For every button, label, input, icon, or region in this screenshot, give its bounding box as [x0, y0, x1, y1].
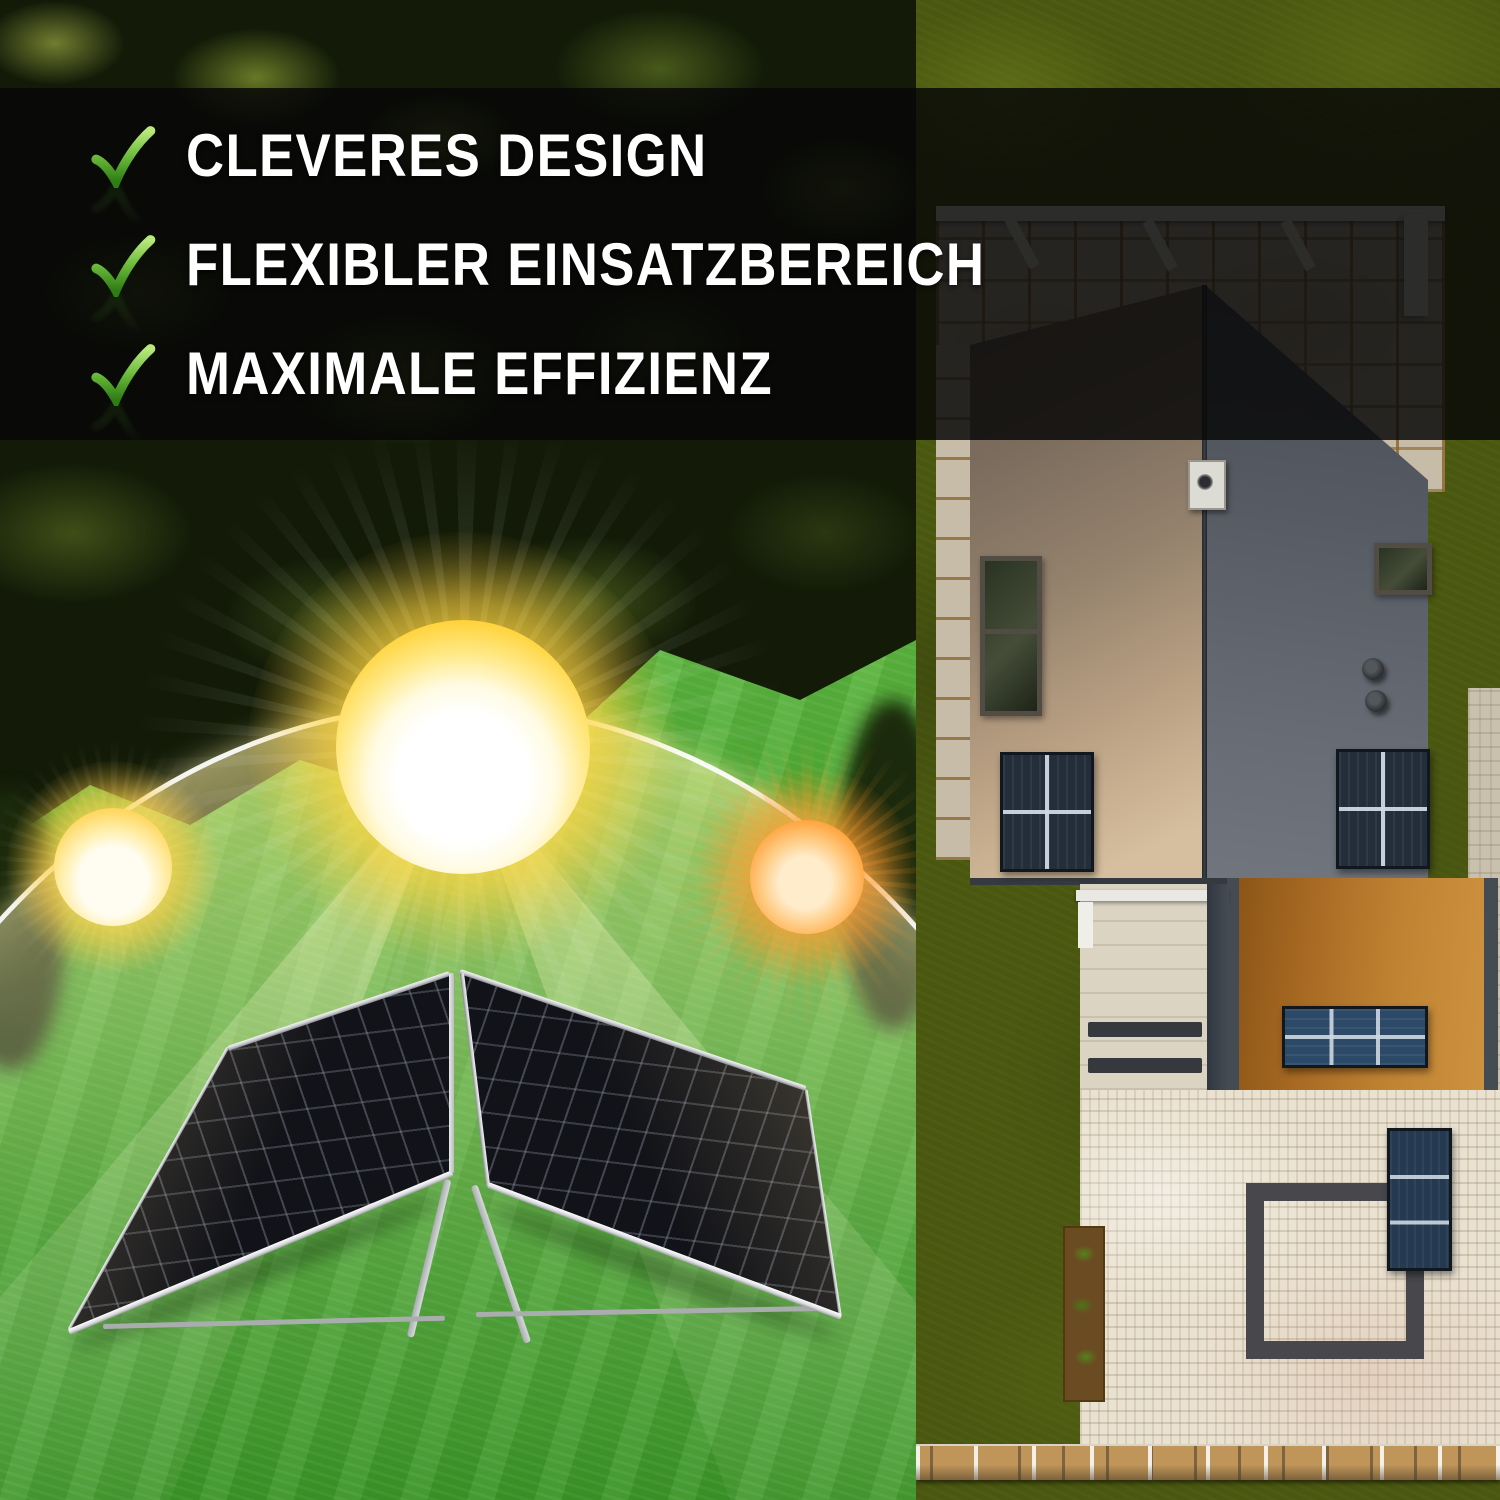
check-icon: [88, 233, 156, 297]
benefits-panel: CLEVERES DESIGN FLEXIBLER EINSATZBEREICH: [0, 88, 1500, 440]
stair-tread: [1088, 1022, 1202, 1037]
sun-morning-icon: [54, 808, 172, 926]
stair-tread: [1088, 1058, 1202, 1073]
feature-list: CLEVERES DESIGN FLEXIBLER EINSATZBEREICH: [0, 88, 1500, 406]
check-icon-glyph: [88, 342, 156, 406]
marketing-image: CLEVERES DESIGN FLEXIBLER EINSATZBEREICH: [0, 0, 1500, 1500]
panel-fold-edge: [449, 973, 454, 1173]
skylight: [980, 556, 1042, 716]
check-icon: [88, 342, 156, 406]
chimney-cap: [1197, 474, 1213, 490]
feature-item: CLEVERES DESIGN: [88, 124, 1500, 188]
rooftop-solar-array-right: [1336, 749, 1430, 869]
feature-item: FLEXIBLER EINSATZBEREICH: [88, 233, 1500, 297]
feature-item: MAXIMALE EFFIZIENZ: [88, 342, 1500, 406]
skylight: [1374, 543, 1432, 595]
check-icon-glyph: [88, 233, 156, 297]
solar-array-grid: [1003, 755, 1091, 869]
deck-pillar: [1207, 884, 1229, 1092]
sun-evening-icon: [750, 820, 864, 934]
solar-array-grid: [1285, 1009, 1425, 1065]
sun-noon-icon: [336, 620, 590, 874]
feature-label: FLEXIBLER EINSATZBEREICH: [186, 235, 985, 295]
check-icon-glyph: [88, 124, 156, 188]
patio-solar-panel: [1387, 1128, 1452, 1271]
garden-bench-row: [916, 1446, 1500, 1480]
railing-post: [1078, 902, 1093, 948]
roof-vent: [1362, 658, 1384, 680]
feature-label: MAXIMALE EFFIZIENZ: [186, 344, 773, 404]
feature-label: CLEVERES DESIGN: [186, 126, 708, 186]
solar-array-grid: [1339, 752, 1427, 866]
roof-vent: [1365, 690, 1387, 712]
check-icon: [88, 124, 156, 188]
deck-railing: [1076, 890, 1228, 901]
rooftop-solar-array-left: [1000, 752, 1094, 872]
chimney: [1188, 460, 1226, 510]
solar-array-grid: [1390, 1131, 1449, 1268]
garden-planter: [1063, 1226, 1105, 1402]
deck-solar-array: [1282, 1006, 1428, 1068]
skylight-mullion: [985, 629, 1037, 634]
check-icon-reflection: [88, 398, 156, 462]
wood-deck: [1227, 878, 1498, 1108]
